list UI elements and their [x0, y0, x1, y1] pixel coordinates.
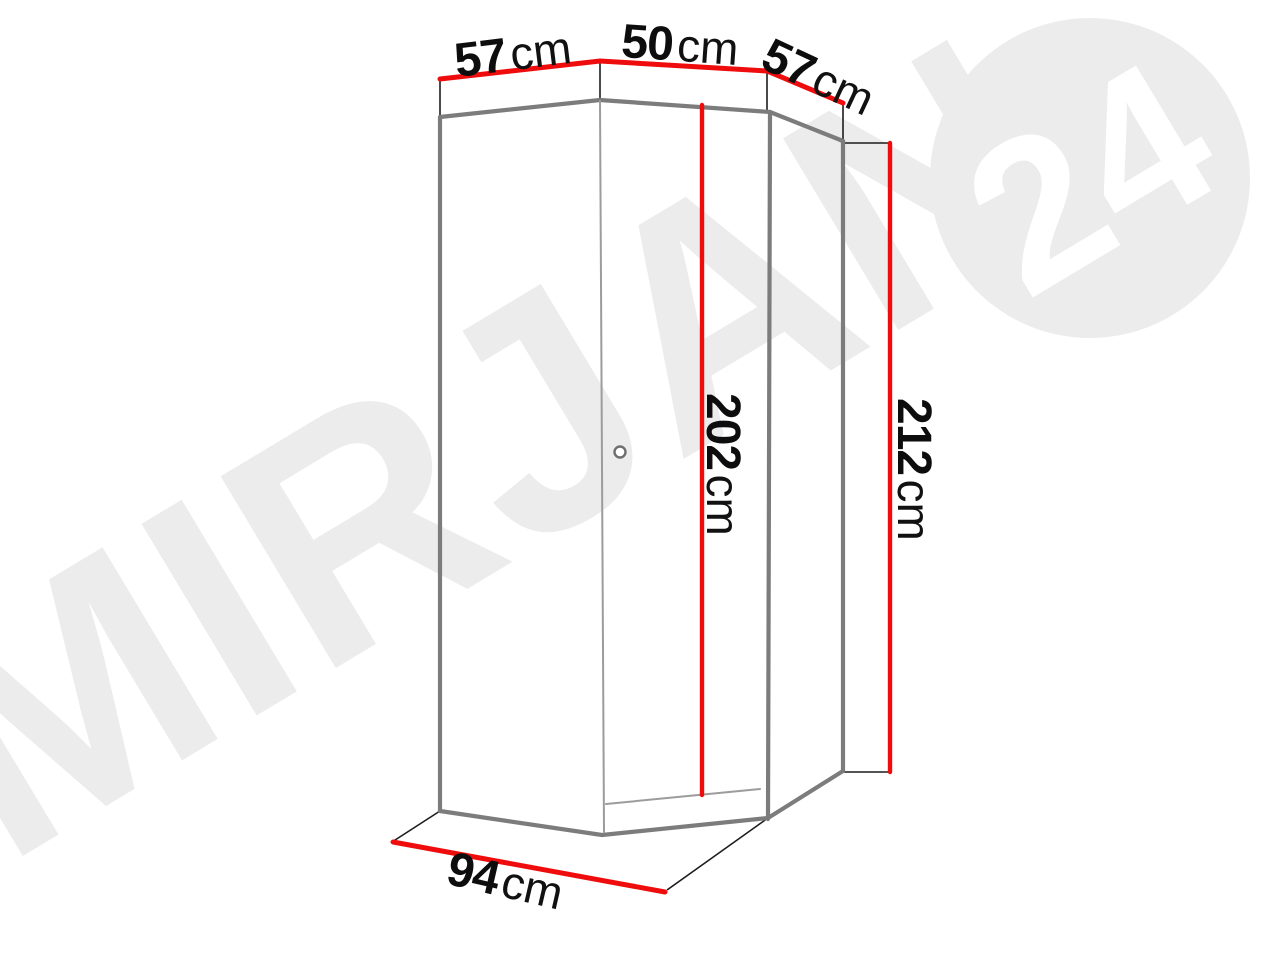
door-left-edge	[600, 101, 604, 832]
label-top-center-width-unit: cm	[676, 19, 741, 75]
label-top-center-width-value: 50	[620, 15, 675, 71]
wardrobe-line-drawing: 57 cm 50 cm 57 cm 202 cm 212 cm 94 cm	[0, 0, 1280, 960]
outline-front-right-edge	[768, 112, 770, 819]
label-top-left-width-unit: cm	[507, 21, 574, 80]
label-top-left-width: 57 cm	[452, 21, 575, 88]
outline-bottom-edge	[440, 771, 843, 835]
label-top-left-width-value: 57	[452, 29, 509, 88]
label-front-height-value: 202	[696, 393, 749, 470]
door-knob	[615, 447, 626, 458]
dimension-lines	[393, 61, 890, 892]
label-front-height: 202 cm	[696, 393, 749, 536]
outline-left-and-top-edge	[440, 100, 843, 811]
extension-lines	[392, 61, 891, 890]
label-side-height-value: 212	[887, 398, 940, 475]
label-base-width-value: 94	[442, 843, 505, 906]
label-front-height-unit: cm	[697, 475, 749, 536]
label-base-width-unit: cm	[497, 855, 568, 919]
label-base-width: 94 cm	[442, 843, 568, 921]
door-bottom-edge	[606, 789, 760, 804]
label-side-height: 212 cm	[887, 398, 940, 541]
label-top-center-width: 50 cm	[620, 15, 741, 76]
label-side-height-unit: cm	[888, 480, 940, 541]
wardrobe-dimension-diagram: MIRJAN 24	[0, 0, 1280, 960]
wardrobe-outline	[440, 100, 843, 835]
extension-line-base-left	[392, 811, 440, 842]
